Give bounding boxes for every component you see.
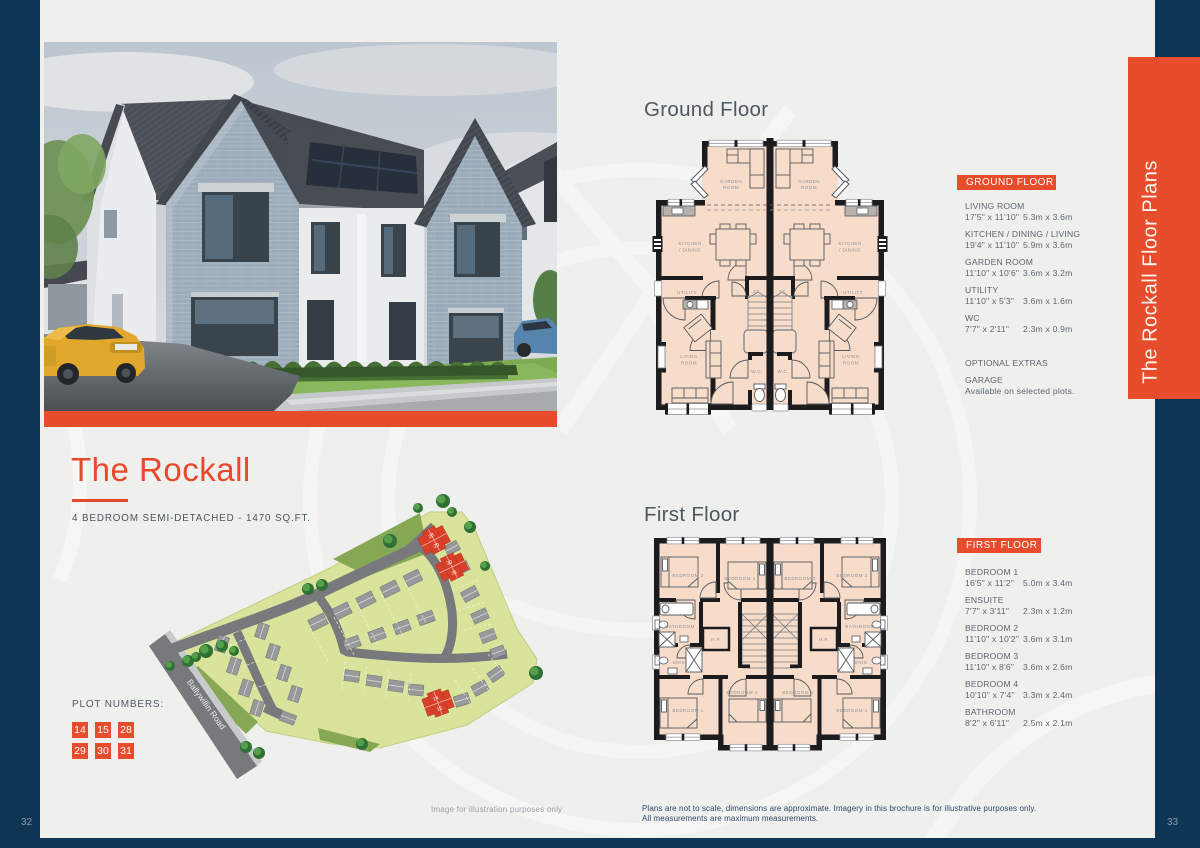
svg-text:H.P.: H.P. <box>819 637 829 642</box>
svg-text:H.P.: H.P. <box>711 637 721 642</box>
svg-text:W.C.: W.C. <box>777 369 789 374</box>
svg-text:EN/S: EN/S <box>673 660 685 665</box>
svg-text:W.C.: W.C. <box>751 369 763 374</box>
svg-text:BEDROOM 2: BEDROOM 2 <box>836 573 867 578</box>
svg-text:ROOM: ROOM <box>843 361 859 366</box>
svg-text:BEDROOM 3: BEDROOM 3 <box>784 576 815 581</box>
svg-text:/ DINING: / DINING <box>679 248 701 253</box>
svg-text:GARDEN: GARDEN <box>720 179 742 184</box>
svg-text:BEDROOM 4: BEDROOM 4 <box>726 690 757 695</box>
svg-text:ST.: ST. <box>779 289 787 294</box>
svg-text:BEDROOM 4: BEDROOM 4 <box>782 690 813 695</box>
svg-text:ROOM: ROOM <box>681 361 697 366</box>
svg-text:UTILITY: UTILITY <box>843 290 863 295</box>
svg-text:BEDROOM 1: BEDROOM 1 <box>836 708 867 713</box>
svg-text:BEDROOM 1: BEDROOM 1 <box>672 708 703 713</box>
svg-text:BATHROOM: BATHROOM <box>845 624 874 629</box>
svg-text:KITCHEN: KITCHEN <box>839 241 862 246</box>
svg-text:EN/S: EN/S <box>855 660 867 665</box>
svg-text:ROOM: ROOM <box>801 185 817 190</box>
svg-text:GARDEN: GARDEN <box>798 179 820 184</box>
svg-text:ST.: ST. <box>753 289 761 294</box>
svg-text:BEDROOM 2: BEDROOM 2 <box>672 573 703 578</box>
svg-text:BEDROOM 3: BEDROOM 3 <box>724 576 755 581</box>
svg-text:KITCHEN: KITCHEN <box>679 241 702 246</box>
svg-text:ROOM: ROOM <box>723 185 739 190</box>
svg-text:LIVING: LIVING <box>680 354 697 359</box>
svg-text:/ DINING: / DINING <box>839 248 861 253</box>
svg-text:UTILITY: UTILITY <box>677 290 697 295</box>
svg-text:BATHROOM: BATHROOM <box>665 624 694 629</box>
svg-text:LIVING: LIVING <box>842 354 859 359</box>
